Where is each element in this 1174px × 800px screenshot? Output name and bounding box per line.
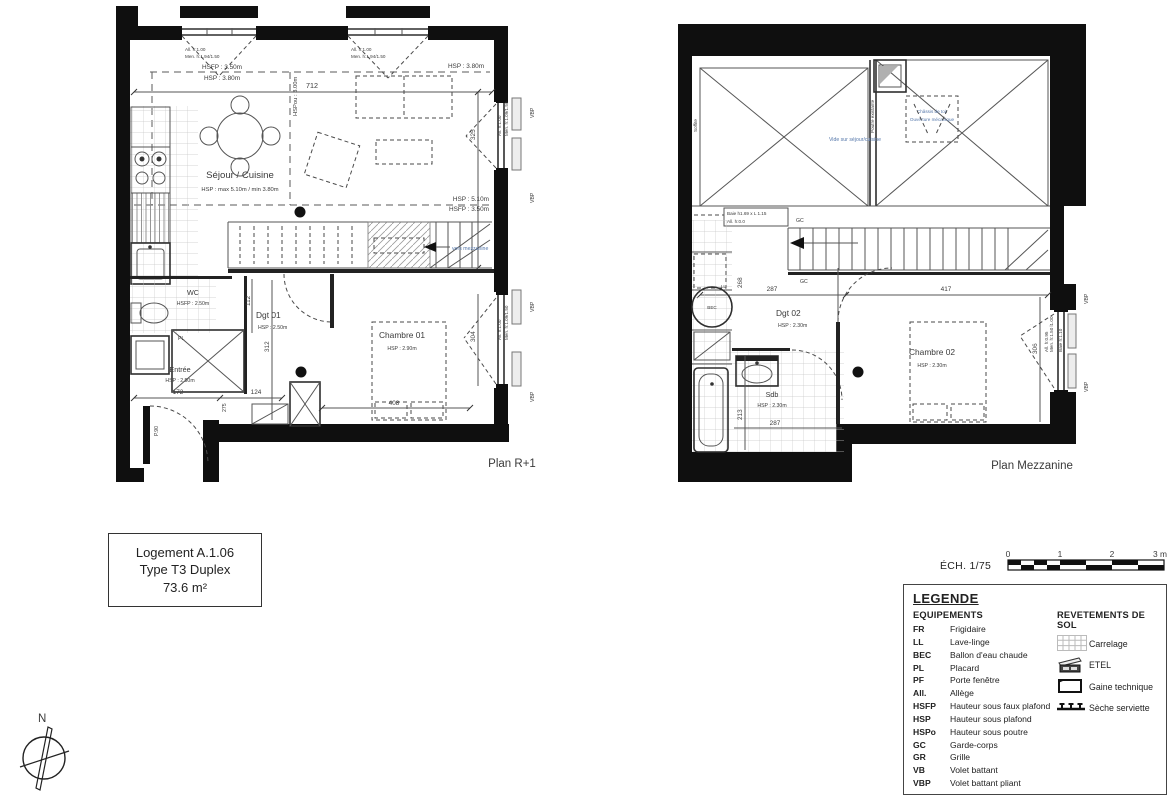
plan-mezzanine: Soffite Poutre existante Vide sur séjour…: [678, 24, 1090, 482]
vers-mezzanine-label: vers mezzanine: [452, 246, 488, 252]
window-note: Men. h:1.94/1.50: [185, 54, 220, 59]
etel-icon: [1057, 656, 1089, 675]
room-height-entree: HSP : 2.50m: [165, 378, 194, 384]
abbr-label: Hauteur sous faux plafond: [950, 700, 1050, 713]
legend-row: PFPorte fenêtre: [913, 674, 1055, 687]
abbr: LL: [913, 636, 950, 649]
abbr-label: Grille: [950, 751, 970, 764]
hatched-zone: [368, 222, 430, 268]
dim-text: 306: [1032, 343, 1039, 354]
abbr: HSPo: [913, 726, 950, 739]
covering-label: ETEL: [1089, 660, 1111, 670]
apartment-type: Type T3 Duplex: [140, 561, 231, 579]
pl-label: PL: [178, 336, 184, 342]
window-note: All. h:1.00: [497, 115, 502, 136]
chassis-label: Ouverture mécanique: [910, 117, 955, 122]
armchair: [304, 132, 359, 187]
poutre-label: Poutre existante: [870, 99, 875, 133]
partition: [836, 322, 840, 424]
abbr-label: Volet battant pliant: [950, 777, 1021, 790]
room-label-dgt01: Dgt 01: [256, 310, 281, 320]
legend-row: Carrelage: [1057, 633, 1165, 655]
scale-tick: 0: [1006, 549, 1011, 559]
legend-row: GRGrille: [913, 751, 1055, 764]
vbp-label: VBP: [530, 107, 536, 118]
gc-label: GC: [800, 279, 808, 285]
equipments-title: EQUIPEMENTS: [913, 610, 1055, 620]
abbr-label: Hauteur sous poutre: [950, 726, 1028, 739]
seche-serviette-icon: [1057, 701, 1089, 715]
dim-408: 408: [319, 400, 473, 411]
abbr-label: Garde-corps: [950, 739, 998, 752]
partition: [732, 348, 790, 351]
plan-r1: All. h:1.00 Men. h:1.94/1.50 All. h:1.00…: [116, 6, 536, 482]
dim-text: 312: [264, 341, 271, 352]
legend-row: HSPHauteur sous plafond: [913, 713, 1055, 726]
soffite-label: Soffite: [693, 119, 698, 132]
hspou-note: HSPou : 3.00m: [293, 77, 299, 116]
dim-text: 287: [767, 286, 778, 293]
floor-coverings-title: REVETEMENTS DE SOL: [1057, 610, 1165, 630]
window-top-b: All. h:1.00 Men. h:1.94/1.50: [348, 28, 428, 78]
kitchen: [130, 106, 198, 284]
window-note: Men. h:1.09/1.50: [504, 101, 509, 136]
garde-corps: [788, 272, 1050, 275]
legend-row: VBPVolet battant pliant: [913, 777, 1055, 790]
hsfp-note: HSFP : 3.50m: [449, 206, 489, 213]
dim-text: 408: [389, 400, 400, 407]
legend-equipments: EQUIPEMENTS FRFrigidaire LLLave-linge BE…: [913, 610, 1055, 790]
room-label-entree: Entrée: [169, 365, 190, 374]
abbr: GR: [913, 751, 950, 764]
structural-post: [295, 207, 306, 218]
worktop: [131, 193, 170, 243]
coffee-table: [376, 140, 432, 164]
chassis-de-toit: Châssis de toit Ouverture mécanique: [906, 96, 958, 142]
dim-text: 112: [245, 295, 252, 306]
skylight-shaft: [874, 60, 906, 92]
vide-right: [876, 60, 1048, 206]
ll-label: LL: [721, 284, 727, 289]
abbr-label: Allège: [950, 687, 974, 700]
dim-text: 213: [737, 409, 744, 420]
abbr: VBP: [913, 777, 950, 790]
etel-box: [252, 404, 288, 424]
legend-row: LLLave-linge: [913, 636, 1055, 649]
legend-floor-coverings: REVETEMENTS DE SOL Carrelage ETEL Gaine …: [1057, 610, 1165, 719]
legend-row: HSPoHauteur sous poutre: [913, 726, 1055, 739]
dim-text: 268: [737, 277, 744, 288]
dim-text: 275: [222, 403, 228, 412]
room-label-chambre01: Chambre 01: [379, 330, 425, 340]
scale-tick: 1: [1058, 549, 1063, 559]
abbr-label: Ballon d'eau chaude: [950, 649, 1028, 662]
wc-room: WC HSFP : 2.50m 112: [130, 276, 252, 394]
vbp-label: VBP: [530, 192, 536, 203]
abbr: VB: [913, 764, 950, 777]
legend-row: BECBallon d'eau chaude: [913, 649, 1055, 662]
legend-row: Gaine technique: [1057, 676, 1165, 698]
door-label: P.90: [154, 426, 160, 436]
hsp-note: HSP : 3.80m: [204, 75, 240, 82]
dim-text: 287: [770, 420, 781, 427]
window-note: Baie h:1.10: [1058, 328, 1063, 352]
abbr-label: Lave-linge: [950, 636, 990, 649]
abbr-label: Frigidaire: [950, 623, 986, 636]
legend-row: ETEL: [1057, 655, 1165, 677]
chassis-label: Châssis de toit: [917, 109, 948, 114]
abbr: HSFP: [913, 700, 950, 713]
legend-row: PLPlacard: [913, 662, 1055, 675]
dim-712: 712: [131, 81, 495, 95]
legend-row: HSFPHauteur sous faux plafond: [913, 700, 1055, 713]
plans-drawing: All. h:1.00 Men. h:1.94/1.50 All. h:1.00…: [0, 0, 1174, 560]
dining-table: [200, 96, 280, 176]
legend-row: Sèche serviette: [1057, 698, 1165, 720]
legend-row: All.Allège: [913, 687, 1055, 700]
abbr-label: Placard: [950, 662, 979, 675]
covering-label: Carrelage: [1089, 639, 1128, 649]
stairs-r1: vers mezzanine: [228, 222, 494, 273]
structural-post: [853, 367, 864, 378]
room-height-chambre01: HSP : 2.90m: [387, 346, 416, 352]
window-note: Men. h:1.50 l1.00: [1049, 316, 1054, 352]
title-block: Logement A.1.06 Type T3 Duplex 73.6 m²: [108, 533, 262, 607]
room-height-sejour: HSP : max 5.10m / min 3.80m: [201, 187, 278, 193]
abbr: BEC: [913, 649, 950, 662]
door-arc-dgt01: [284, 274, 332, 322]
apartment-id: Logement A.1.06: [136, 544, 234, 562]
scale-tick: 3 m: [1153, 549, 1167, 559]
entrance-door: P.90: [143, 406, 208, 464]
dim-text: 304: [470, 331, 477, 342]
abbr-label: Hauteur sous plafond: [950, 713, 1032, 726]
room-height-dgt02: HSP : 2.30m: [778, 323, 807, 329]
hsfp-note: HSFP : 3.50m: [202, 64, 242, 71]
room-height-chambre02: HSP : 2.30m: [917, 363, 946, 369]
gaine-technique-box: [290, 382, 320, 426]
abbr: HSP: [913, 713, 950, 726]
floorplan-sheet: All. h:1.00 Men. h:1.94/1.50 All. h:1.00…: [0, 0, 1174, 800]
window-note: All. h:1.00: [497, 319, 502, 340]
dim-text: 124: [251, 389, 262, 396]
scale-bar-graphic: 0 1 2 3 m: [1002, 548, 1172, 578]
legend-box: LEGENDE EQUIPEMENTS FRFrigidaire LLLave-…: [903, 584, 1167, 795]
abbr-label: Volet battant: [950, 764, 998, 777]
baie-label: Baie h1.69 x L 1.15: [727, 211, 767, 216]
stairs-mezzanine: GC: [788, 228, 1050, 285]
structural-post: [296, 367, 307, 378]
window-right-mezz: All. h:0.95 Men. h:1.50 l1.00 Baie h:1.1…: [1020, 293, 1090, 394]
apartment-area: 73.6 m²: [163, 579, 207, 597]
gaine-technique-icon: [1057, 678, 1089, 696]
legend-row: FRFrigidaire: [913, 623, 1055, 636]
sofa: [356, 76, 452, 118]
abbr-label: Porte fenêtre: [950, 674, 1000, 687]
vbp-label: VBP: [1084, 293, 1090, 304]
room-label-wc: WC: [187, 288, 199, 297]
abbr: PL: [913, 662, 950, 675]
north-arrow: N: [8, 706, 88, 796]
gc-label: GC: [796, 218, 804, 224]
window-note: All. h:1.00: [351, 47, 372, 52]
scale-bar: ÉCH. 1/75 0 1 2 3 m: [940, 548, 1172, 582]
room-height-dgt01: HSP : 2.50m: [258, 325, 287, 331]
bec-label: BEC: [707, 305, 717, 310]
dim-312: 312: [264, 280, 272, 420]
abbr: GC: [913, 739, 950, 752]
legend-row: GCGarde-corps: [913, 739, 1055, 752]
carrelage-icon: [1057, 635, 1089, 653]
dim-text: 172: [173, 389, 184, 396]
legend-row: VBVolet battant: [913, 764, 1055, 777]
vbp-label: VBP: [530, 391, 536, 402]
window-note: All. h:1.00: [185, 47, 206, 52]
washbasin-entree: [131, 336, 169, 374]
room-label-dgt02: Dgt 02: [776, 308, 801, 318]
partition: [330, 274, 334, 328]
scale-label: ÉCH. 1/75: [940, 560, 991, 572]
bathroom: LL BEC Sdb HSP : 2.30m 21: [692, 220, 844, 452]
abbr: All.: [913, 687, 950, 700]
window-note: Men. h:1.94/1.50: [351, 54, 386, 59]
vbp-label: VBP: [1084, 381, 1090, 392]
dim-text: 417: [941, 286, 952, 293]
room-height-wc: HSFP : 2.50m: [177, 301, 209, 307]
dim-306: 306: [1032, 297, 1040, 422]
bed-chambre02: [910, 322, 986, 422]
direction-arrow: [790, 237, 804, 249]
abbr: FR: [913, 623, 950, 636]
window-right-2: All. h:1.00 Men. h:1.09/1.50 VBP VBP: [464, 290, 536, 402]
hsp-note: HSP : 5.10m: [453, 196, 489, 203]
dim-text: 325: [470, 129, 477, 140]
room-height-sdb: HSP : 2.30m: [757, 403, 786, 409]
room-label-chambre02: Chambre 02: [909, 347, 955, 357]
plan-mezzanine-title: Plan Mezzanine: [991, 460, 1073, 472]
plan-r1-title: Plan R+1: [488, 458, 536, 470]
covering-label: Gaine technique: [1089, 682, 1153, 692]
dim-text: 712: [306, 81, 318, 90]
north-label: N: [38, 713, 46, 725]
room-label-sdb: Sdb: [766, 390, 779, 399]
window-note: Men. h:1.09/1.50: [504, 305, 509, 340]
hsp-note: HSP : 3.80m: [448, 63, 484, 70]
legend-title: LEGENDE: [913, 591, 1158, 606]
dim-mezz-top: 287 417 268: [697, 277, 1051, 298]
covering-label: Sèche serviette: [1089, 703, 1150, 713]
vide-label: Vide sur séjour/cuisine: [829, 137, 881, 143]
scale-tick: 2: [1110, 549, 1115, 559]
abbr: PF: [913, 674, 950, 687]
vbp-label: VBP: [530, 301, 536, 312]
dim-304: 304: [470, 294, 478, 386]
